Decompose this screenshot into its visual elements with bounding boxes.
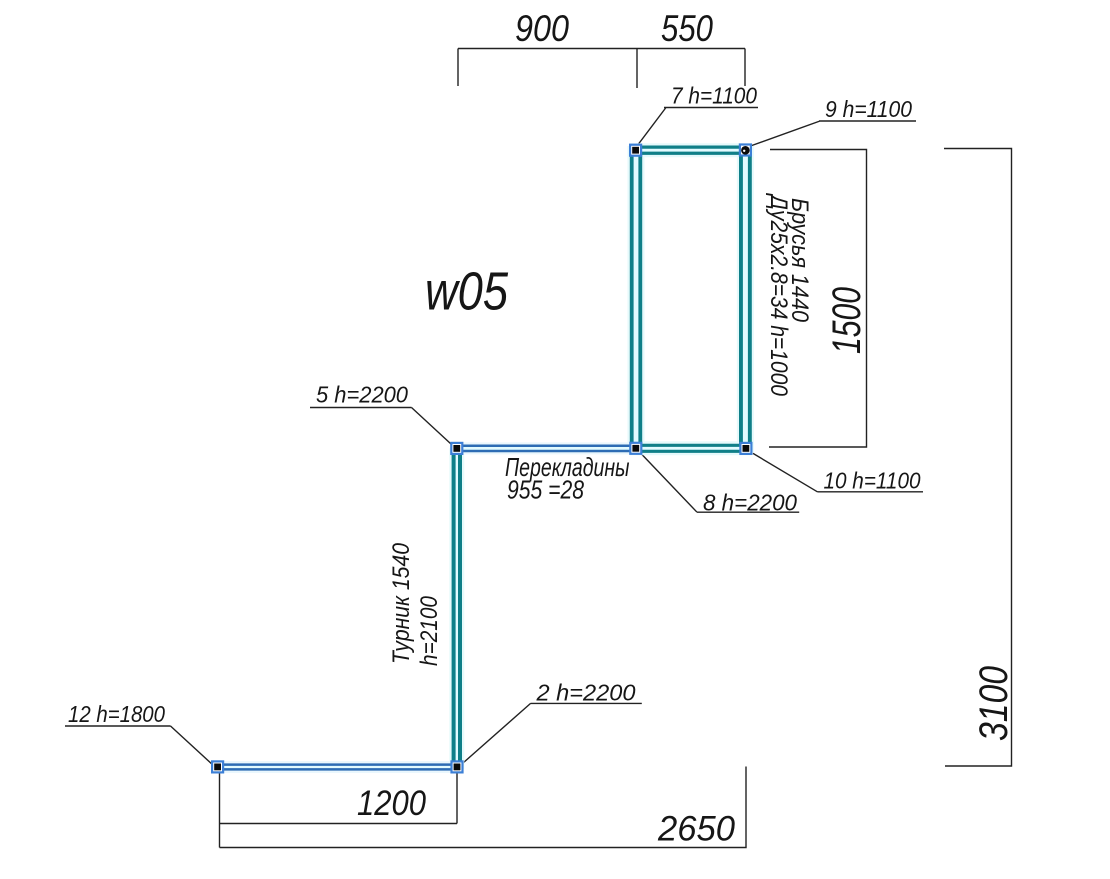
svg-text:2650: 2650	[657, 810, 736, 849]
svg-text:Турник 1540: Турник 1540	[388, 542, 415, 664]
svg-text:12 h=1800: 12 h=1800	[68, 701, 165, 727]
svg-text:1500: 1500	[825, 287, 869, 354]
svg-text:9 h=1100: 9 h=1100	[825, 96, 912, 122]
svg-text:w05: w05	[425, 262, 509, 322]
svg-text:5 h=2200: 5 h=2200	[316, 382, 408, 408]
svg-text:550: 550	[661, 8, 713, 49]
svg-text:1200: 1200	[357, 784, 426, 823]
svg-text:7 h=1100: 7 h=1100	[671, 83, 757, 109]
svg-text:3100: 3100	[972, 666, 1016, 741]
svg-text:900: 900	[515, 8, 569, 49]
svg-text:8 h=2200: 8 h=2200	[703, 490, 797, 516]
svg-text:10 h=1100: 10 h=1100	[824, 468, 921, 494]
svg-text:2 h=2200: 2 h=2200	[535, 679, 635, 705]
svg-text:h=2100: h=2100	[416, 595, 443, 666]
svg-text:Ду25х2.8=34 h=1000: Ду25х2.8=34 h=1000	[765, 192, 792, 396]
svg-text:955 =28: 955 =28	[507, 475, 584, 505]
